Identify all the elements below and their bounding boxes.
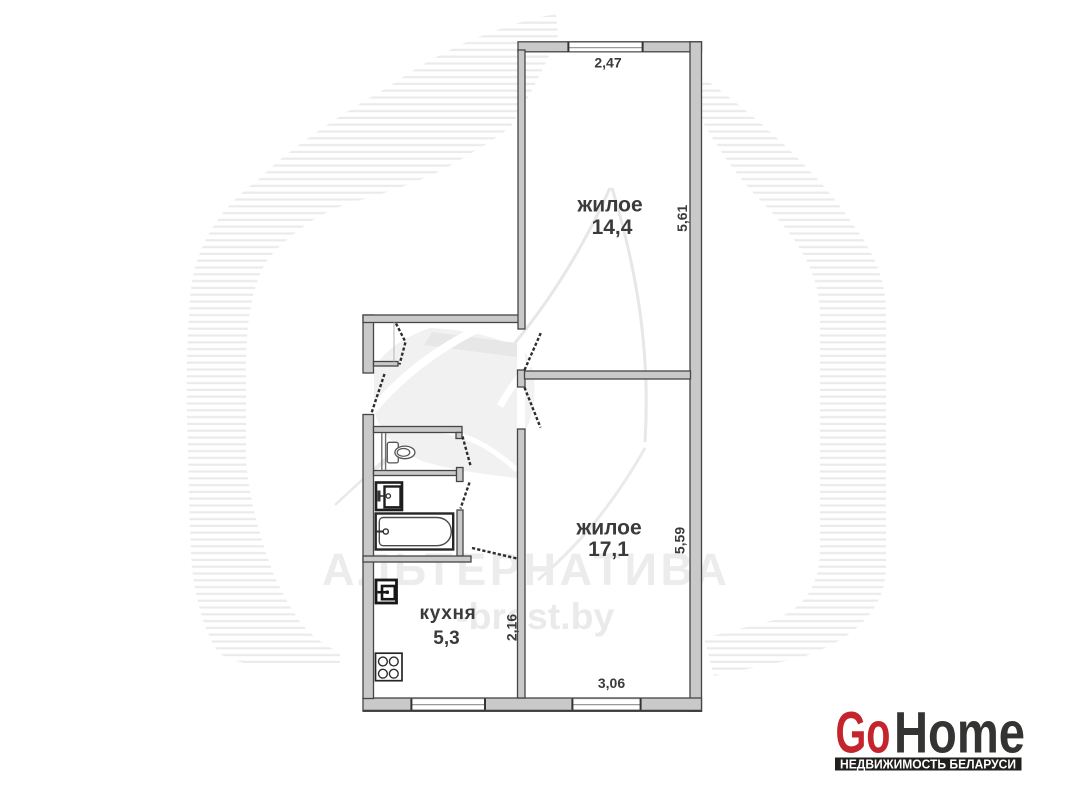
svg-text:5,3: 5,3 xyxy=(433,628,459,649)
svg-text:-brest.by: -brest.by xyxy=(456,595,615,637)
svg-text:жилое: жилое xyxy=(576,194,642,217)
svg-text:2,16: 2,16 xyxy=(503,614,519,641)
svg-text:3,06: 3,06 xyxy=(598,675,625,691)
svg-text:жилое: жилое xyxy=(575,517,641,540)
svg-text:17,1: 17,1 xyxy=(588,538,629,561)
svg-text:2,47: 2,47 xyxy=(594,55,621,71)
svg-text:14,4: 14,4 xyxy=(592,216,633,239)
svg-text:5,59: 5,59 xyxy=(672,527,688,554)
svg-text:кухня: кухня xyxy=(420,603,477,624)
svg-text:5,61: 5,61 xyxy=(674,204,690,231)
svg-text:НЕДВИЖИМОСТЬ БЕЛАРУСИ: НЕДВИЖИМОСТЬ БЕЛАРУСИ xyxy=(840,756,1016,771)
